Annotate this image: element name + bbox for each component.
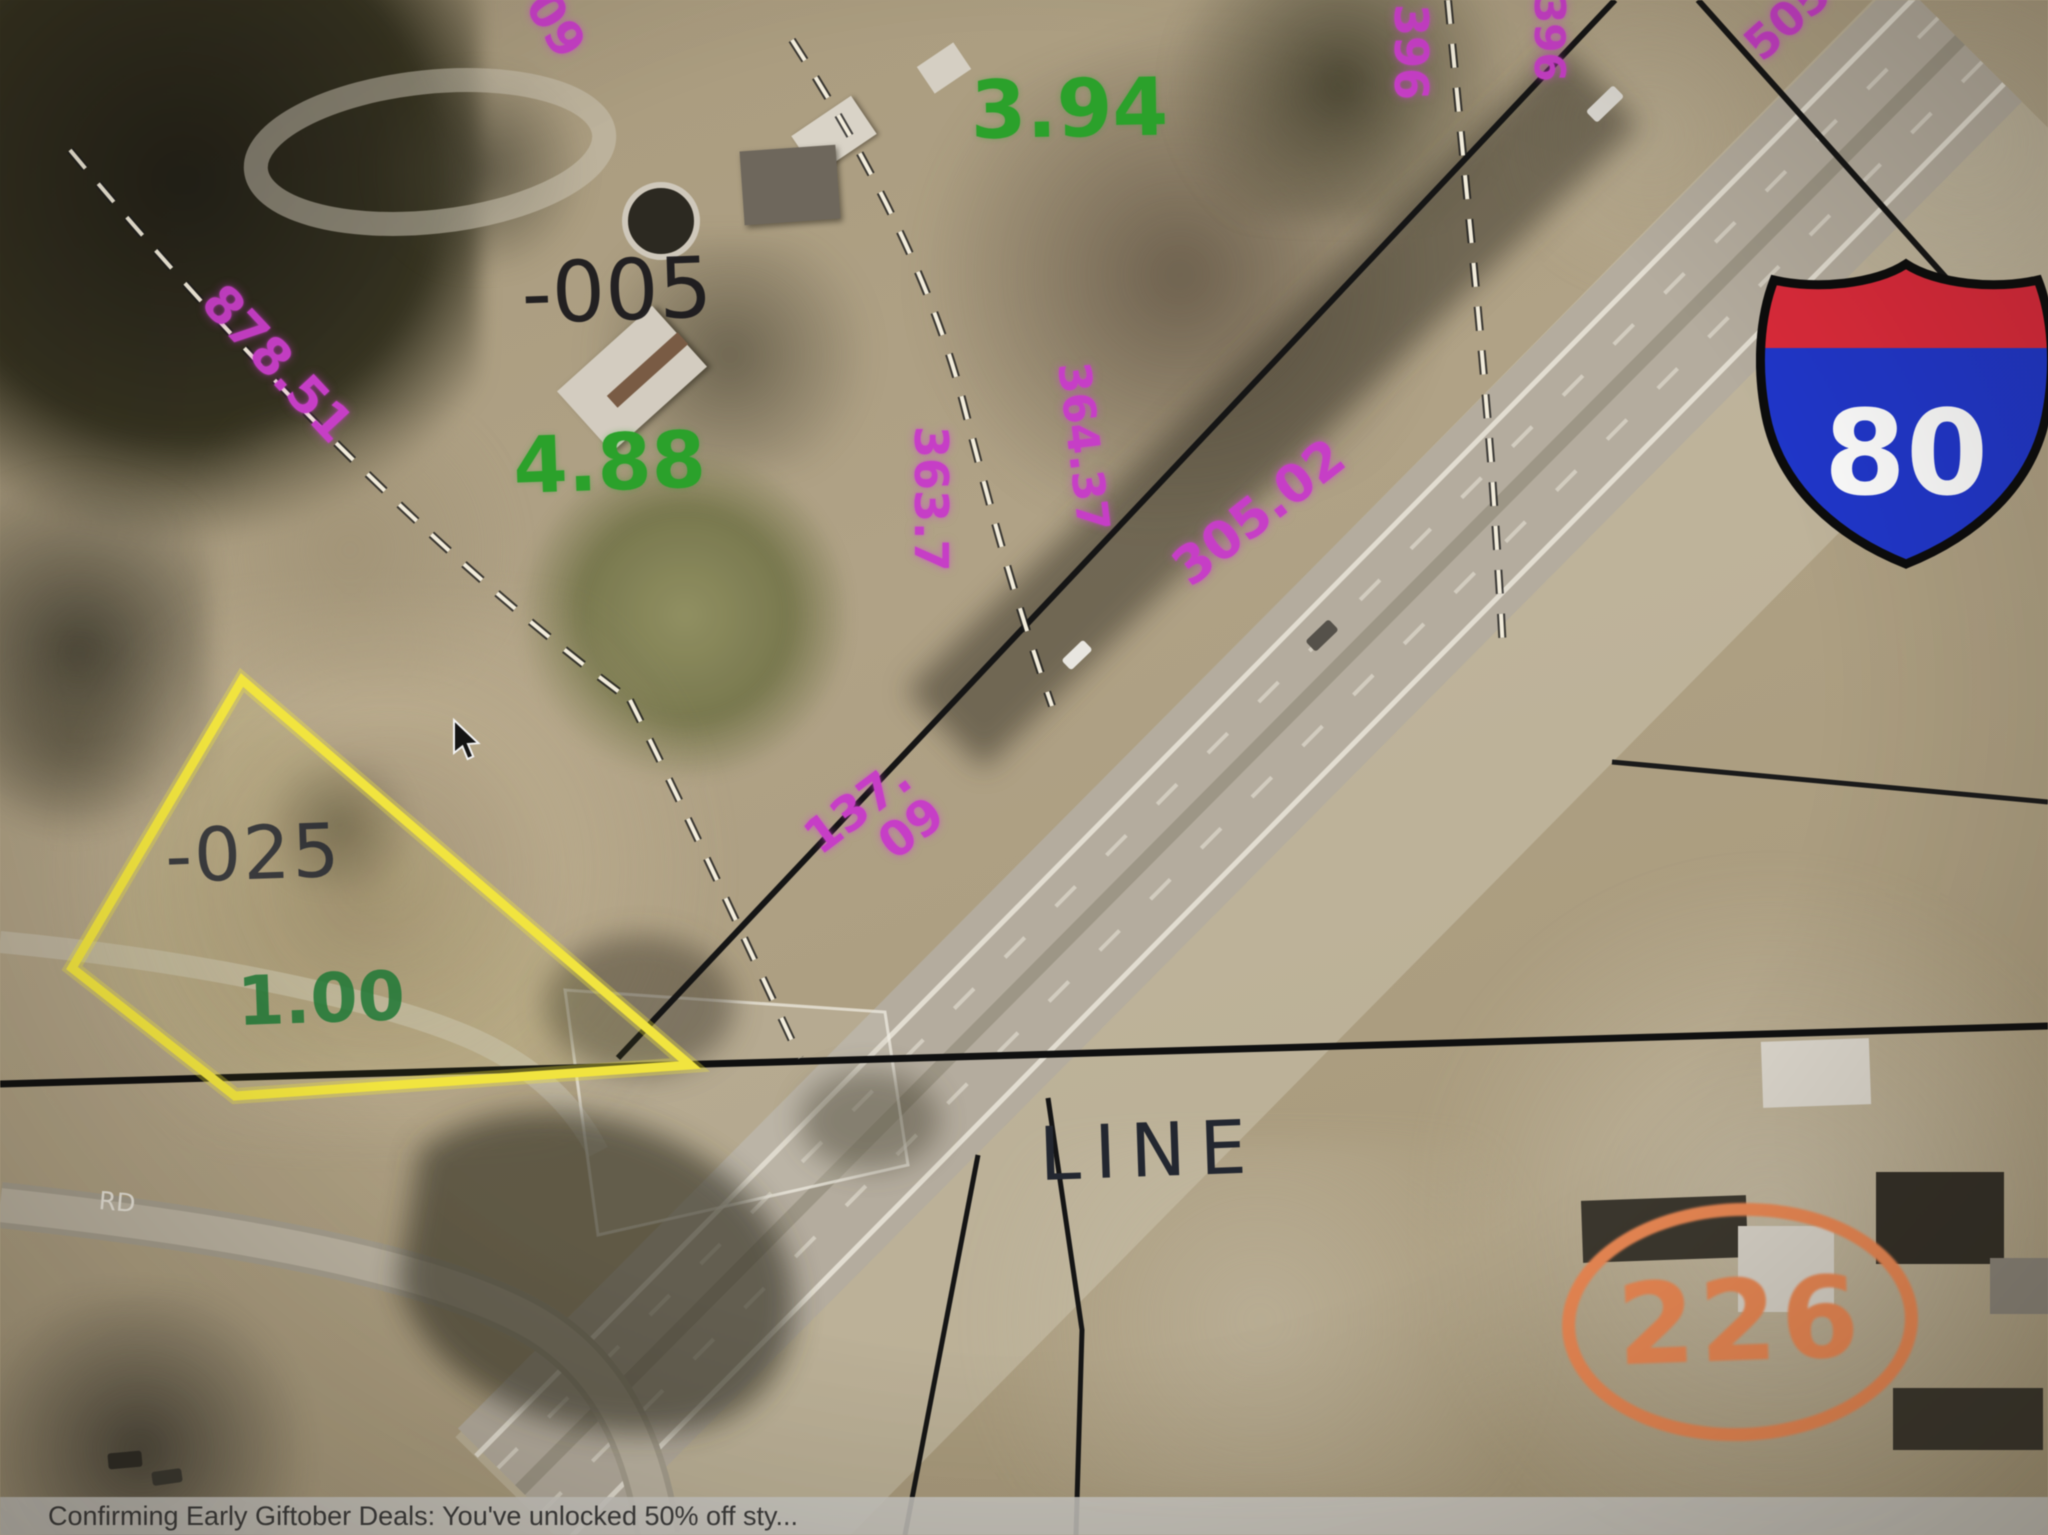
shield-red-band: [1761, 264, 2048, 348]
notification-bar[interactable]: Confirming Early Giftober Deals: You've …: [0, 1497, 2048, 1535]
notification-text: Confirming Early Giftober Deals: You've …: [48, 1501, 798, 1532]
route-number: 226: [1615, 1253, 1865, 1391]
acreage-label-3-94: 3.94: [970, 67, 1169, 152]
acreage-label-1-00: 1.00: [236, 962, 406, 1037]
dimension-label-363-7: 363.7: [907, 426, 954, 572]
driveway-loop: [249, 64, 612, 240]
interstate-80-shield: 80: [1756, 256, 2048, 572]
mouse-cursor: [452, 718, 486, 764]
parcel-line: [1612, 762, 2048, 802]
parcel-id-label-005: -005: [520, 245, 714, 337]
interstate-route-number: 80: [1824, 384, 1988, 522]
tree-clump: [800, 1070, 940, 1170]
vehicle: [107, 1451, 142, 1470]
parcel-id-label-025: -025: [164, 814, 342, 896]
acreage-label-4-88: 4.88: [512, 421, 707, 507]
road-name-label-line: LINE: [1038, 1110, 1262, 1193]
dimension-label-396-b: 396: [1527, 0, 1570, 82]
dimension-label-396-a: 396: [1387, 4, 1434, 100]
screen-photo: 09 878.51 -005 4.88 3.94 396 396 505 363…: [0, 0, 2048, 1535]
road-name-label-rd: RD: [98, 1188, 137, 1217]
parcel-map[interactable]: 09 878.51 -005 4.88 3.94 396 396 505 363…: [0, 0, 2048, 1535]
